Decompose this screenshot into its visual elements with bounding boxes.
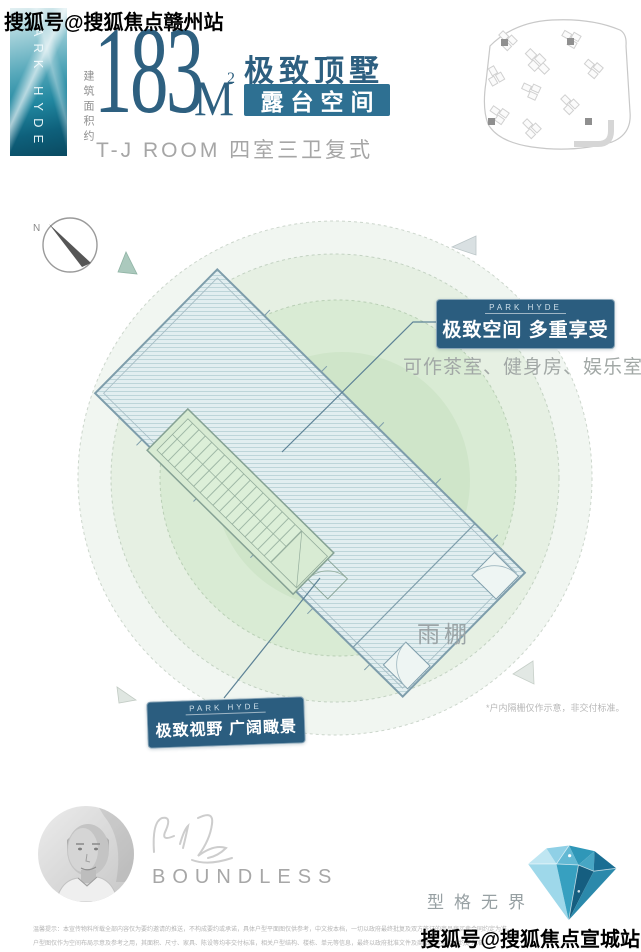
callout-view: PARK HYDE 极致视野 广阔瞰景 <box>146 696 306 748</box>
callout-title: 极致视野 广阔瞰景 <box>153 712 300 741</box>
signature-name: BOUNDLESS <box>152 866 338 889</box>
architect-portrait <box>38 806 134 902</box>
triangle-marker-icon <box>117 687 136 703</box>
plan-footnote: *户内隔栅仅作示意，非交付标准。 <box>486 701 625 714</box>
diamond-icon <box>518 840 622 924</box>
subheadline-text: 露台空间 <box>261 83 381 117</box>
canopy-label: 雨棚 <box>417 615 471 649</box>
floor-plan-canvas: N <box>0 192 641 760</box>
subheadline-tag: 露台空间 <box>244 84 390 116</box>
triangle-marker-icon <box>118 252 137 274</box>
callout-space: PARK HYDE 极致空间 多重享受 <box>436 299 615 349</box>
callout-title: 极致空间 多重享受 <box>442 315 609 342</box>
callout-description: 可作茶室、健身房、娱乐室等 <box>403 352 641 379</box>
compass-north-label: N <box>33 223 40 234</box>
signature-icon <box>148 808 240 868</box>
watermark-top-left: 搜狐号@搜狐焦点赣州站 <box>4 6 224 35</box>
area-unit-superscript: 2 <box>227 70 235 88</box>
triangle-marker-icon <box>513 661 534 684</box>
site-plan-map <box>474 12 640 162</box>
poster-page: 搜狐号@搜狐焦点赣州站 PARK HYDE 建筑面积约 183 M 2 极致顶墅… <box>0 0 641 952</box>
callout-brand: PARK HYDE <box>442 303 609 312</box>
compass-icon: N <box>33 218 97 272</box>
room-type-line: T-J ROOM 四室三卫复式 <box>96 134 373 164</box>
watermark-bottom-right: 搜狐号@搜狐焦点宣城站 <box>420 923 640 952</box>
